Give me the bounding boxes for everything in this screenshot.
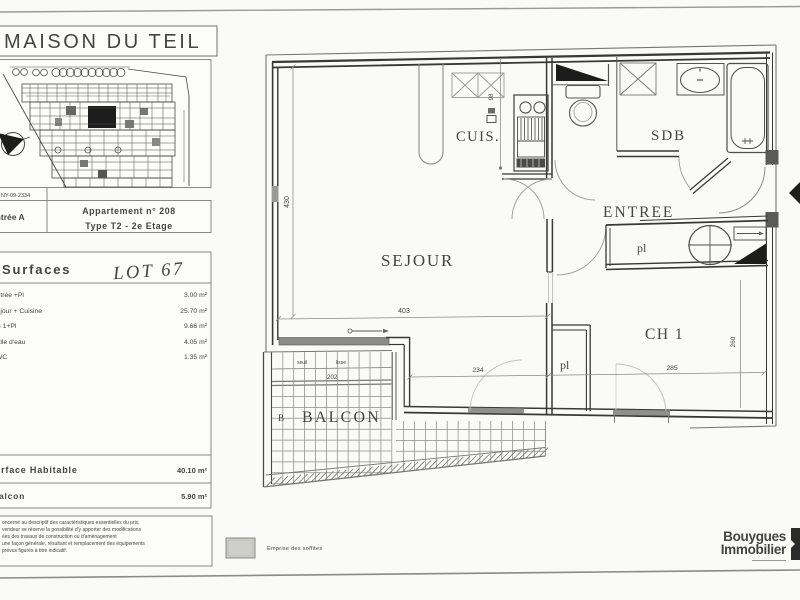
svg-text:Appartement n° 208: Appartement n° 208 <box>82 206 176 216</box>
svg-text:403: 403 <box>398 308 410 315</box>
svg-text:430: 430 <box>284 196 291 208</box>
svg-text:Surfaces: Surfaces <box>2 262 71 277</box>
svg-text:CH 1: CH 1 <box>645 326 684 343</box>
svg-text:260: 260 <box>730 336 737 347</box>
svg-text:Immobilier: Immobilier <box>721 542 787 557</box>
svg-text:25.70 m²: 25.70 m² <box>180 308 208 315</box>
svg-text:9.66 m²: 9.66 m² <box>184 323 208 330</box>
svg-text:MAISON DU TEIL: MAISON DU TEIL <box>4 31 201 53</box>
svg-text:40.10 m²: 40.10 m² <box>177 466 208 475</box>
svg-text:B: B <box>278 413 284 423</box>
svg-text:pl: pl <box>560 358 570 372</box>
svg-text:202: 202 <box>327 374 338 381</box>
svg-text:Entrée A: Entrée A <box>0 212 25 222</box>
svg-text:vendeur se réserve la possibil: vendeur se réserve la possibilité d'y ap… <box>2 527 142 533</box>
svg-text:Surface Habitable: Surface Habitable <box>0 465 78 475</box>
svg-text:SEJOUR: SEJOUR <box>381 251 454 270</box>
svg-text:Séjour + Cuisine: Séjour + Cuisine <box>0 308 42 315</box>
svg-text:SDB: SDB <box>651 128 686 144</box>
svg-text:ENTREE: ENTREE <box>603 204 674 221</box>
svg-text:Ch 1+Pl: Ch 1+Pl <box>0 323 17 330</box>
svg-text:5.90 m²: 5.90 m² <box>181 492 207 501</box>
svg-text:234: 234 <box>472 367 484 374</box>
svg-text:oncerné au descriptif des cara: oncerné au descriptif des caractéristiqu… <box>2 520 140 526</box>
svg-text:Type T2 - 2e Etage: Type T2 - 2e Etage <box>85 221 172 231</box>
svg-text:CUIS.: CUIS. <box>456 129 500 145</box>
svg-text:pl: pl <box>637 241 647 255</box>
svg-text:NY-09-2334: NY-09-2334 <box>1 193 30 199</box>
svg-text:Salle d'eau: Salle d'eau <box>0 339 26 346</box>
svg-text:prévus figurés à titre indicat: prévus figurés à titre indicatif. <box>2 548 67 554</box>
svg-text:3.00 m²: 3.00 m² <box>184 292 208 299</box>
svg-text:98: 98 <box>488 93 495 100</box>
svg-text:WC: WC <box>0 354 7 361</box>
svg-text:4.05 m²: 4.05 m² <box>184 339 208 346</box>
svg-text:Entrée +Pl: Entrée +Pl <box>0 292 24 299</box>
svg-text:Emprise des soffites: Emprise des soffites <box>267 546 322 552</box>
svg-text:1.35 m²: 1.35 m² <box>184 354 208 361</box>
svg-text:une façon générale, résultant: une façon générale, résultant et remplac… <box>2 541 145 547</box>
svg-text:seuil: seuil <box>297 360 307 366</box>
svg-text:ées des travaux de constructio: ées des travaux de construction ou d'amé… <box>2 534 117 540</box>
svg-text:Balcon: Balcon <box>0 491 25 501</box>
svg-text:285: 285 <box>666 365 678 372</box>
svg-text:BALCON: BALCON <box>302 409 381 426</box>
svg-text:lisse: lisse <box>336 360 346 366</box>
